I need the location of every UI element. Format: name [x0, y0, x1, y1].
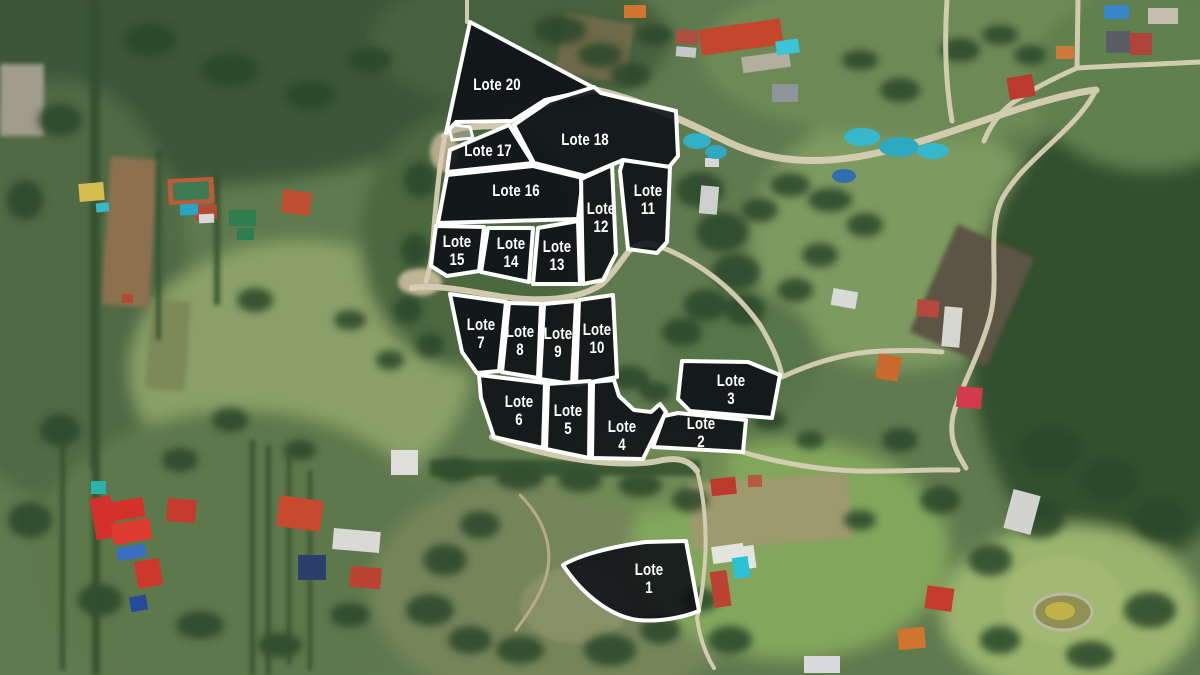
pond-center — [1045, 602, 1075, 620]
swimming-pool — [879, 137, 919, 157]
lot-lote-11: Lote11 — [620, 160, 670, 253]
house-roof — [349, 566, 382, 590]
swimming-pool — [832, 169, 856, 183]
lot-label-lote-18: Lote 18 — [561, 131, 608, 150]
house-roof — [1106, 31, 1130, 53]
house-roof — [804, 656, 840, 673]
swimming-pool — [683, 133, 711, 149]
house-roof — [916, 299, 939, 318]
house-roof — [897, 627, 926, 650]
lot-lote-9: Lote9 — [540, 301, 576, 384]
house-roof — [624, 5, 646, 18]
swimming-pool — [1104, 5, 1129, 19]
lot-label-lote-20: Lote 20 — [473, 76, 520, 95]
swimming-pool — [298, 555, 326, 580]
lot-lote-12: Lote12 — [581, 165, 616, 284]
house-roof — [199, 214, 214, 224]
swimming-pool — [129, 595, 148, 613]
lot-lote-5: Lote5 — [546, 381, 590, 458]
lot-lote-3: Lote3 — [678, 361, 780, 418]
house-roof — [1006, 74, 1035, 100]
house-roof — [391, 450, 418, 475]
house-roof — [941, 306, 962, 347]
house-roof — [675, 29, 698, 45]
house-roof — [134, 558, 163, 589]
lot-label-lote-17: Lote 17 — [464, 142, 511, 161]
house-roof — [705, 158, 719, 167]
swimming-pool — [917, 143, 949, 159]
house-roof — [676, 46, 697, 58]
house-roof — [166, 498, 197, 523]
house-roof — [924, 585, 954, 612]
house-roof — [772, 84, 798, 102]
lot-lote-2: Lote2 — [653, 413, 746, 452]
house-roof — [237, 228, 254, 240]
house-roof — [122, 294, 133, 303]
house-roof — [699, 185, 719, 214]
house-roof — [748, 475, 762, 487]
swimming-pool — [91, 481, 106, 494]
house-roof — [710, 477, 737, 497]
house-roof — [78, 182, 104, 202]
house-roof — [1130, 33, 1152, 55]
lot-lote-14: Lote14 — [481, 228, 533, 282]
aerial-photo-background: Lote 20Lote 18Lote 17Lote 16Lote15Lote14… — [0, 0, 1200, 675]
swimming-pool — [844, 128, 880, 146]
lot-lote-16: Lote 16 — [438, 166, 583, 223]
lot-lote-15: Lote15 — [431, 226, 484, 276]
house-roof — [229, 210, 256, 226]
house-roof — [276, 495, 324, 532]
swimming-pool — [96, 202, 110, 212]
aerial-map: Lote 20Lote 18Lote 17Lote 16Lote15Lote14… — [0, 0, 1200, 675]
house-roof — [1148, 8, 1178, 24]
lot-lote-8: Lote8 — [502, 303, 541, 378]
house-roof — [280, 189, 312, 216]
house-roof — [332, 528, 381, 553]
swimming-pool — [180, 204, 199, 216]
lot-lote-13: Lote13 — [533, 221, 580, 284]
swimming-pool — [732, 556, 751, 579]
house-roof — [956, 386, 983, 409]
lot-lote-10: Lote10 — [576, 295, 617, 385]
lot-label-lote-16: Lote 16 — [492, 182, 539, 201]
swimming-pool — [705, 145, 727, 159]
house-roof — [875, 353, 902, 382]
house-roof — [1056, 46, 1074, 59]
tennis-court-surface — [173, 181, 210, 201]
pond — [1034, 594, 1092, 630]
